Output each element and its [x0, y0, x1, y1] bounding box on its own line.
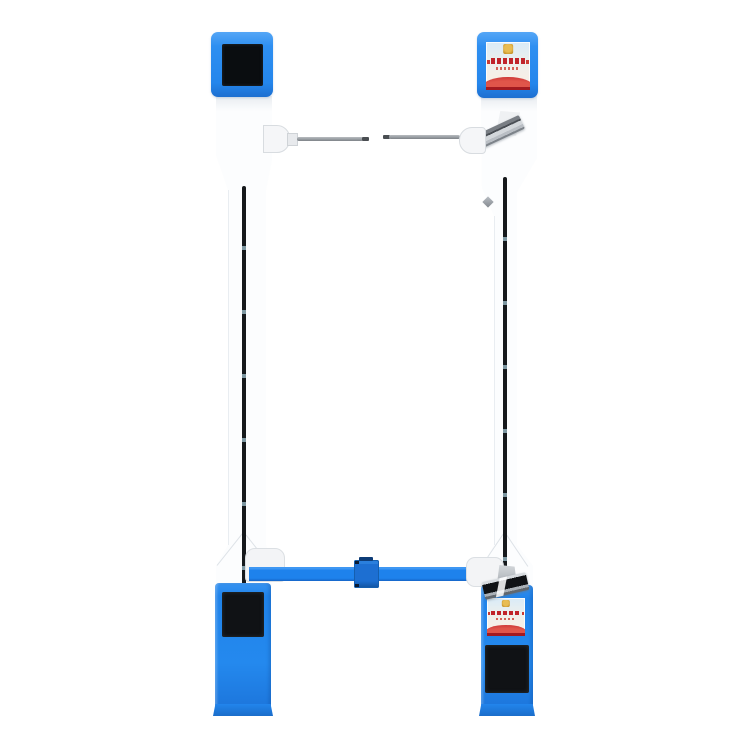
left-ir-arm-bar — [297, 137, 363, 141]
left-pillar-column-edge — [266, 190, 267, 545]
left-pillar-top-shade — [216, 95, 272, 111]
poster-red-floor — [486, 87, 530, 90]
left-arm-mount — [263, 125, 290, 153]
left-pedestal-base-flare — [213, 704, 273, 716]
left-pedestal-panel — [222, 592, 264, 637]
left-ir-sensor-strip — [242, 186, 246, 585]
product-image — [0, 0, 750, 750]
left-pedestal — [215, 583, 271, 716]
right-pedestal-poster-screen — [487, 598, 525, 636]
right-top-display-box — [477, 32, 538, 98]
poster-title-text — [491, 611, 521, 616]
poster-side-mark — [526, 60, 529, 64]
left-ir-arm-tip — [362, 137, 369, 141]
right-pedestal — [481, 585, 533, 716]
poster-side-mark — [522, 612, 524, 615]
poster-side-mark — [488, 612, 490, 615]
left-top-screen — [222, 44, 263, 86]
poster-side-mark — [487, 60, 490, 64]
hinge-bolt — [355, 584, 359, 587]
right-pedestal-panel — [485, 645, 529, 693]
right-pillar-column-edge — [517, 192, 518, 545]
right-ir-arm-bar — [389, 135, 460, 139]
hinge-bolt — [355, 561, 359, 564]
left-pillar-column-edge — [228, 190, 229, 545]
poster-subtitle-text — [496, 618, 517, 620]
right-top-screen-poster — [486, 42, 530, 90]
poster-emblem — [503, 44, 513, 53]
poster-title-text — [491, 58, 525, 64]
beam-center-hinge — [354, 560, 379, 588]
right-pillar-column-edge — [494, 216, 495, 545]
left-base-gable-line — [217, 531, 245, 566]
left-top-display-box — [211, 32, 273, 97]
poster-emblem — [502, 600, 510, 607]
hinge-top-tab — [359, 557, 373, 561]
right-pillar-body — [479, 95, 539, 589]
right-pedestal-base-flare — [479, 704, 535, 716]
right-ir-sensor-strip — [503, 177, 507, 577]
right-arm-mount — [459, 127, 486, 154]
poster-subtitle-text — [496, 67, 520, 70]
poster-red-floor — [487, 633, 525, 636]
